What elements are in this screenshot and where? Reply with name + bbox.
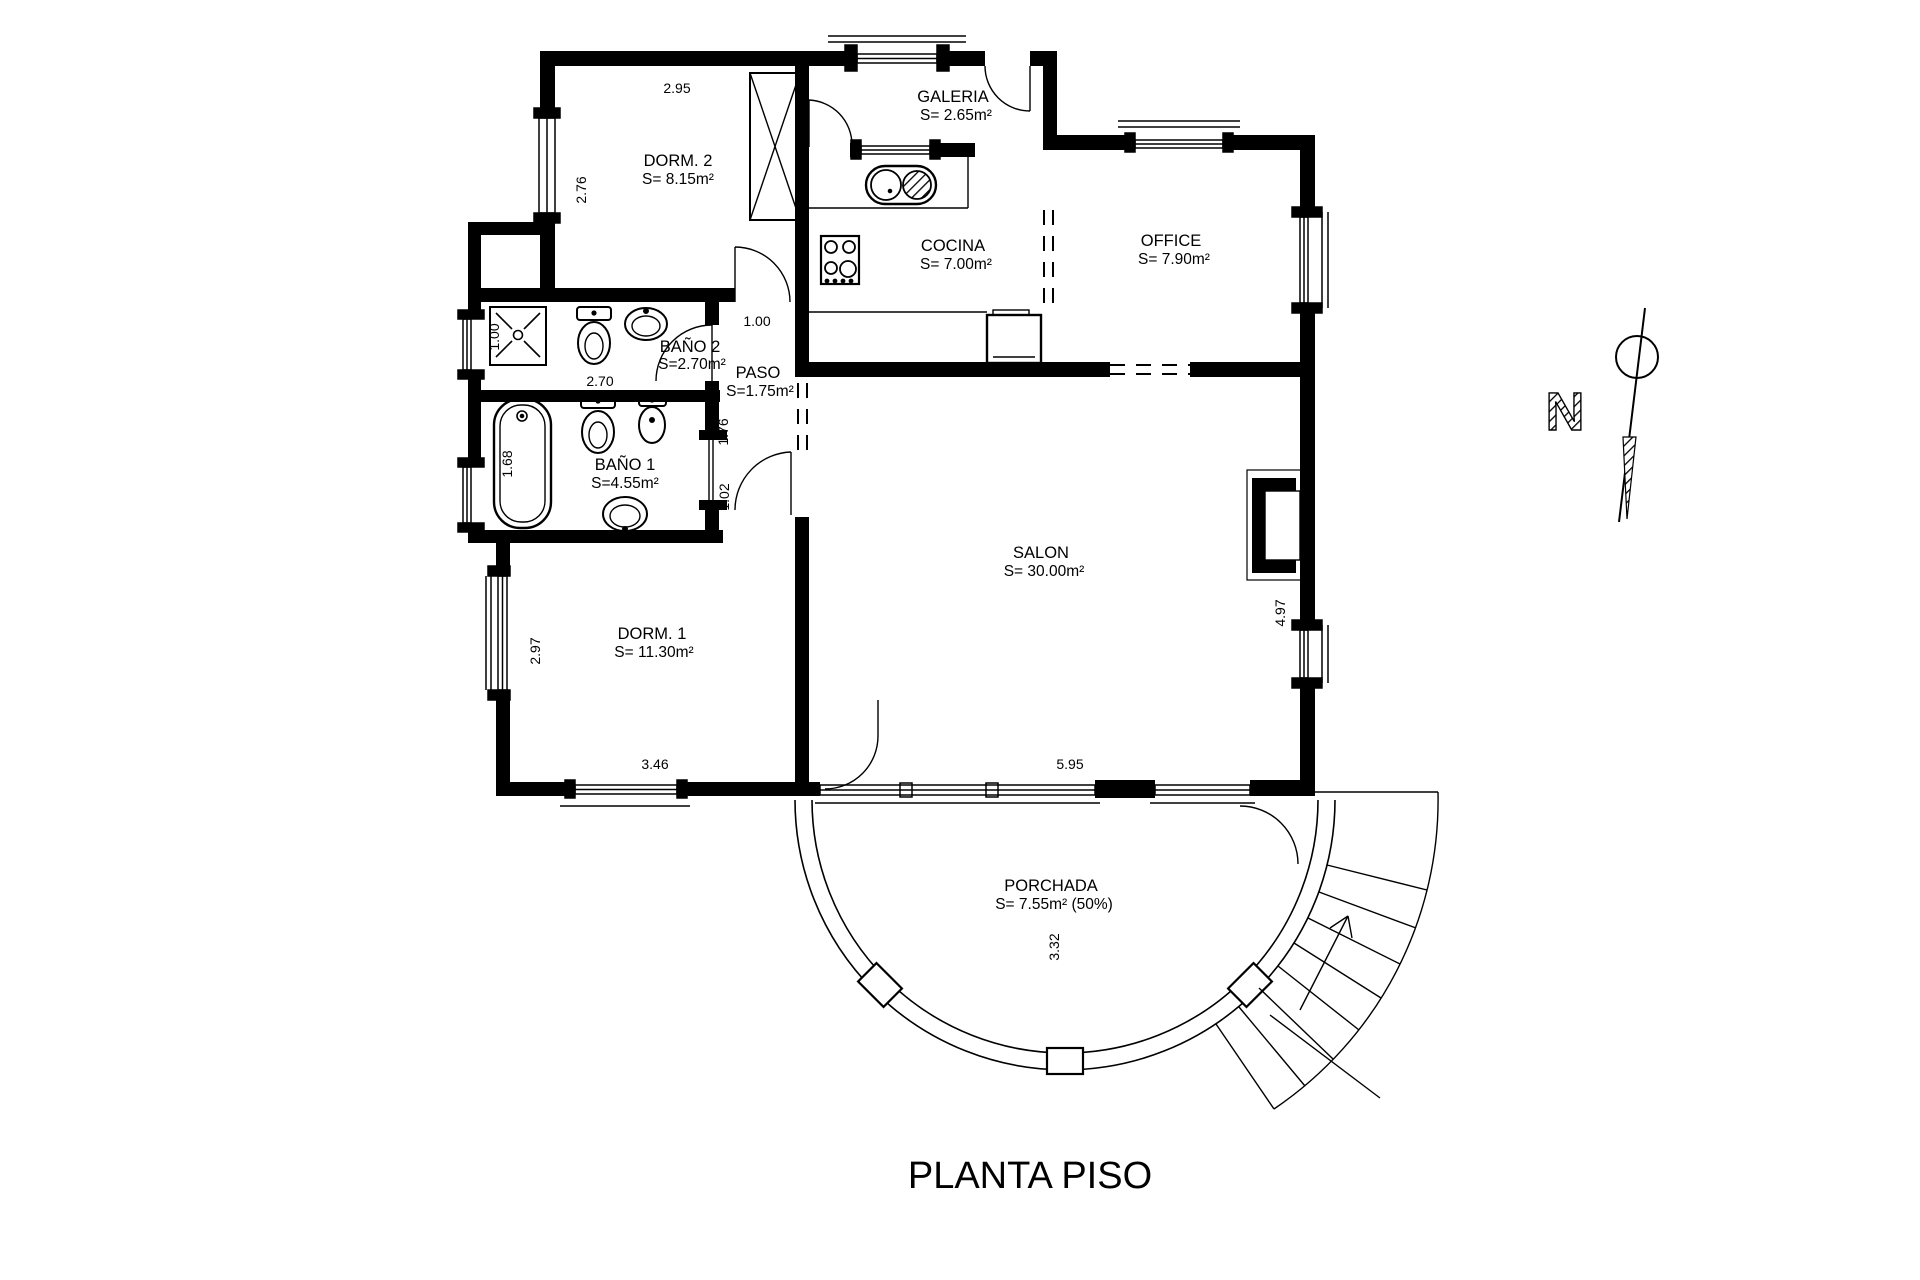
- window: [851, 140, 940, 159]
- window: [1292, 207, 1328, 313]
- porch: [795, 800, 1335, 1074]
- door-leaf: [709, 440, 713, 500]
- stairs: [1216, 792, 1438, 1109]
- bidet-icon: [639, 395, 666, 443]
- window: [560, 780, 690, 806]
- north-letter: N: [1546, 382, 1585, 442]
- dashed-openings: [798, 210, 1190, 452]
- dim-dorm2-width: 2.95: [663, 80, 690, 96]
- dim-paso-width: 1.00: [743, 313, 770, 329]
- counters: [809, 157, 1438, 792]
- door-arc: [735, 452, 791, 515]
- dim-paso-length: 1.76: [715, 418, 731, 445]
- door-arc: [825, 700, 878, 789]
- window: [828, 36, 966, 71]
- room-label-bano1: BAÑO 1: [595, 454, 656, 474]
- sink-icon: [625, 308, 667, 340]
- room-area-paso: S=1.75m²: [726, 383, 794, 400]
- dimension-labels: 2.95 2.76 1.00 2.70 1.00 1.76 1.02 1.68 …: [486, 80, 1288, 961]
- window: [458, 310, 484, 379]
- dim-dorm1-height: 2.97: [527, 637, 543, 664]
- fireplace-icon: [1247, 470, 1302, 580]
- toilet-icon: [577, 307, 611, 364]
- door-arc: [735, 247, 790, 302]
- room-label-salon: SALON: [1013, 544, 1069, 562]
- window: [1150, 785, 1255, 803]
- walls: [468, 51, 1315, 798]
- window: [534, 108, 560, 223]
- room-label-office: OFFICE: [1141, 232, 1202, 250]
- room-label-galeria: GALERIA: [917, 88, 989, 106]
- door-arc: [1240, 806, 1298, 864]
- room-label-cocina: COCINA: [921, 237, 985, 255]
- door-arc: [985, 66, 1030, 111]
- floor-plan-page: N DORM. 2 S= 8.15m² GALERIA S= 2.65m² CO…: [0, 0, 1920, 1280]
- dim-porch-depth: 3.32: [1046, 933, 1062, 960]
- room-area-porchada: S= 7.55m² (50%): [995, 896, 1113, 913]
- room-label-porchada: PORCHADA: [1004, 877, 1098, 895]
- doors: [656, 66, 1298, 864]
- dim-salon-width: 5.95: [1056, 756, 1083, 772]
- door-arc: [809, 100, 852, 147]
- room-label-dorm1: DORM. 1: [618, 625, 687, 643]
- north-needle-line: [1619, 308, 1645, 522]
- fridge-icon: [987, 310, 1041, 363]
- window: [815, 783, 1100, 803]
- floor-plan-svg: N DORM. 2 S= 8.15m² GALERIA S= 2.65m² CO…: [0, 0, 1920, 1280]
- windows: [458, 36, 1328, 806]
- room-label-paso: PASO: [736, 364, 781, 382]
- room-area-bano1: S=4.55m²: [591, 475, 659, 492]
- kitchen-sink-icon: [866, 166, 936, 204]
- dim-bathtub-length: 1.68: [499, 450, 515, 477]
- dim-dorm1-width: 3.46: [641, 756, 668, 772]
- window: [486, 566, 510, 700]
- dim-paso-door: 1.02: [716, 483, 732, 510]
- north-needle: [1623, 437, 1636, 519]
- room-area-bano2: S=2.70m²: [658, 356, 726, 373]
- dim-salon-height: 4.97: [1272, 599, 1288, 626]
- north-indicator: N: [1546, 308, 1659, 522]
- porch-pillar: [1047, 1048, 1083, 1074]
- room-area-dorm1: S= 11.30m²: [614, 644, 693, 661]
- plan-title: PLANTA PISO: [908, 1155, 1152, 1197]
- room-area-galeria: S= 2.65m²: [920, 107, 992, 124]
- dim-dorm2-height: 2.76: [573, 176, 589, 203]
- room-area-dorm2: S= 8.15m²: [642, 171, 714, 188]
- room-area-salon: S= 30.00m²: [1004, 563, 1085, 580]
- window: [458, 458, 484, 532]
- window: [1118, 121, 1240, 152]
- room-area-office: S= 7.90m²: [1138, 251, 1210, 268]
- dim-shower-width: 1.00: [486, 323, 502, 350]
- room-area-cocina: S= 7.00m²: [920, 256, 992, 273]
- sink-icon: [603, 497, 647, 531]
- wardrobe-icon: [750, 73, 800, 220]
- room-label-bano2: BAÑO 2: [660, 336, 721, 356]
- stove-icon: [821, 236, 859, 284]
- porch-pillar: [858, 963, 902, 1007]
- porch-pillar: [1228, 963, 1272, 1007]
- room-label-dorm2: DORM. 2: [644, 152, 713, 170]
- dim-bano2-width: 2.70: [586, 373, 613, 389]
- window: [1292, 620, 1328, 688]
- toilet-icon: [581, 395, 615, 453]
